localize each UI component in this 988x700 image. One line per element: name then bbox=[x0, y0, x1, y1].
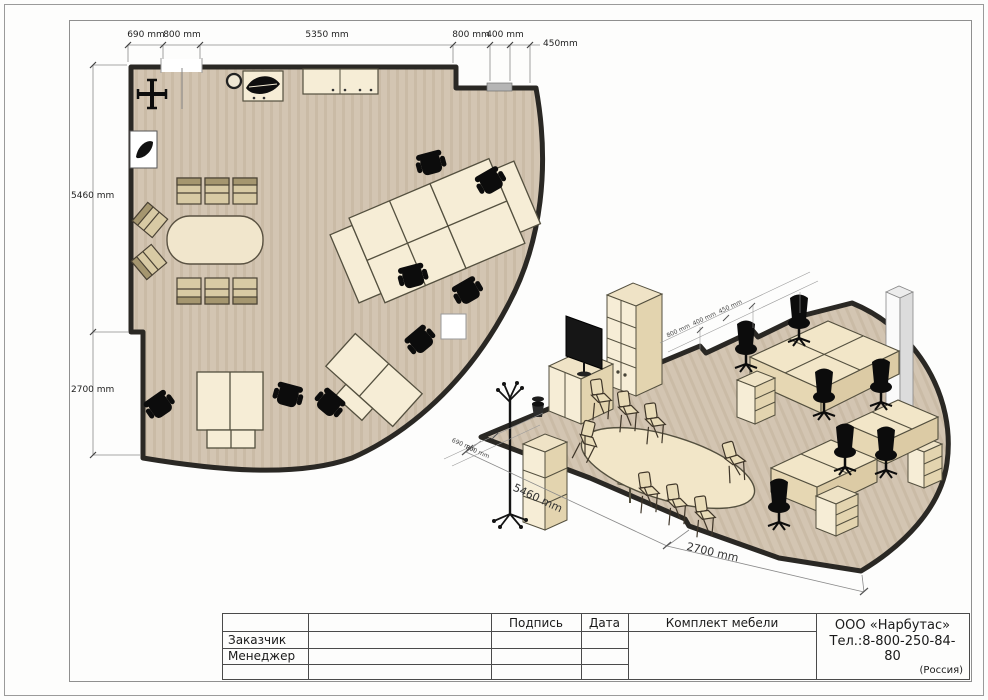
dim-top-690: 690 mm bbox=[127, 31, 165, 40]
pedestal-iso-3 bbox=[816, 486, 858, 536]
dim-top-400: 400 mm bbox=[486, 31, 524, 40]
bookcase bbox=[607, 283, 662, 396]
company-country: (Россия) bbox=[822, 665, 963, 676]
desk-left-plan bbox=[197, 372, 263, 448]
dim-top-800a: 800 mm bbox=[163, 31, 201, 40]
plant-cabinet bbox=[243, 71, 283, 101]
pedestal-iso-1 bbox=[737, 371, 775, 424]
wall-cabinet bbox=[303, 69, 378, 94]
bin-plan bbox=[227, 74, 241, 88]
dim-left-2700: 2700 mm bbox=[71, 386, 114, 395]
furniture-layout-drawing bbox=[0, 0, 988, 700]
company-name: ООО «Нарбутас» bbox=[822, 618, 963, 633]
title-block: Подпись Дата Комплект мебели Заказчик Ме… bbox=[222, 613, 970, 680]
dim-top-800b: 800 mm bbox=[452, 31, 490, 40]
dim-top-5350: 5350 mm bbox=[305, 31, 348, 40]
conference-table-plan bbox=[167, 216, 263, 264]
pedestal-plan bbox=[441, 314, 466, 339]
floor-plan bbox=[130, 58, 545, 470]
company-info: ООО «Нарбутас» Тел.:8-800-250-84-80 (Рос… bbox=[816, 614, 969, 679]
plant-stand bbox=[130, 131, 157, 168]
bin-iso bbox=[532, 396, 544, 417]
company-phone: Тел.:8-800-250-84-80 bbox=[822, 634, 963, 664]
signature-column-header: Подпись bbox=[491, 614, 581, 631]
dim-top-450: 450mm bbox=[543, 40, 578, 49]
drawing-sheet: 690 mm 800 mm 5350 mm 800 mm 400 mm 450m… bbox=[0, 0, 988, 700]
date-column-header: Дата bbox=[581, 614, 628, 631]
manager-row-label: Менеджер bbox=[223, 648, 308, 664]
window bbox=[487, 83, 512, 91]
dim-left-5460: 5460 mm bbox=[71, 192, 114, 201]
furniture-set-header: Комплект мебели bbox=[628, 614, 816, 631]
customer-row-label: Заказчик bbox=[223, 631, 308, 648]
